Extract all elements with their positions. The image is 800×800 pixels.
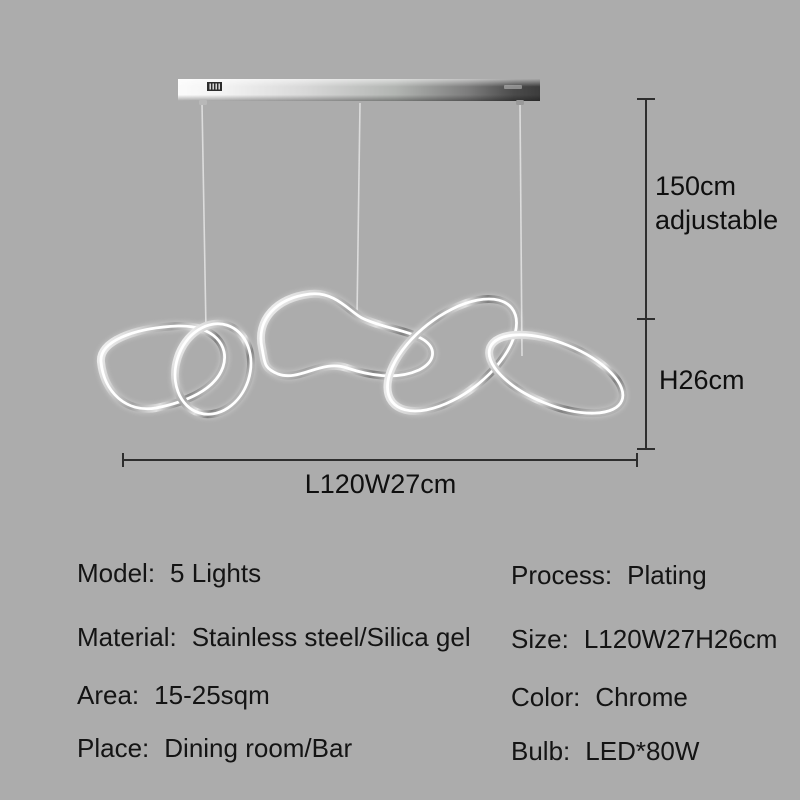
spec-row-process: Process:Plating xyxy=(511,560,707,590)
ring-1 xyxy=(101,326,225,409)
ceiling-bar xyxy=(178,79,540,105)
spec-label-model: Model: xyxy=(77,558,155,588)
spec-row-color: Color:Chrome xyxy=(511,682,688,712)
spec-value-material: Stainless steel/Silica gel xyxy=(192,622,471,652)
led-rings xyxy=(101,277,634,432)
dimension-line-horizontal xyxy=(123,459,638,461)
dimension-tick-top xyxy=(637,98,655,100)
spec-row-bulb: Bulb:LED*80W xyxy=(511,736,699,766)
spec-row-area: Area:15-25sqm xyxy=(77,680,270,710)
spec-value-process: Plating xyxy=(627,560,707,590)
wire-left xyxy=(202,103,206,330)
dimension-tick-right xyxy=(636,453,638,467)
spec-label-size: Size: xyxy=(511,624,569,654)
spec-row-place: Place:Dining room/Bar xyxy=(77,733,352,763)
spec-label-bulb: Bulb: xyxy=(511,736,570,766)
drop-height-label: 150cm adjustable xyxy=(655,169,778,237)
spec-label-area: Area: xyxy=(77,680,139,710)
barcode-mark xyxy=(207,82,222,91)
spec-label-process: Process: xyxy=(511,560,612,590)
dimension-tick-middle xyxy=(637,318,655,320)
spec-value-size: L120W27H26cm xyxy=(584,624,778,654)
fixture-height-label: H26cm xyxy=(659,366,745,394)
wire-connector-right xyxy=(516,100,524,105)
spec-value-model: 5 Lights xyxy=(170,558,261,588)
spec-value-color: Chrome xyxy=(595,682,687,712)
chandelier-illustration xyxy=(0,0,800,520)
drop-height-line2: adjustable xyxy=(655,203,778,237)
ring-4 xyxy=(368,277,536,432)
wire-connector-left xyxy=(199,100,207,105)
wire-middle xyxy=(357,103,360,316)
spec-value-area: 15-25sqm xyxy=(154,680,270,710)
product-spec-image: { "colors": { "background": "#acacac", "… xyxy=(0,0,800,800)
ceiling-bar-shading xyxy=(178,79,540,101)
spec-row-size: Size:L120W27H26cm xyxy=(511,624,777,654)
ring-3 xyxy=(261,294,433,376)
spec-label-material: Material: xyxy=(77,622,177,652)
ring-5 xyxy=(479,319,634,430)
dimension-tick-left xyxy=(122,453,124,467)
spec-value-bulb: LED*80W xyxy=(585,736,699,766)
dimension-tick-bottom xyxy=(637,448,655,450)
bar-brand-mark xyxy=(504,85,522,89)
spec-row-model: Model:5 Lights xyxy=(77,558,261,588)
spec-row-material: Material:Stainless steel/Silica gel xyxy=(77,622,471,652)
spec-value-place: Dining room/Bar xyxy=(164,733,352,763)
spec-label-place: Place: xyxy=(77,733,149,763)
product-diagram: 150cm adjustable H26cm L120W27cm Model:5… xyxy=(0,0,800,800)
fixture-width-label: L120W27cm xyxy=(123,469,638,499)
dimension-line-vertical xyxy=(645,99,647,449)
spec-label-color: Color: xyxy=(511,682,580,712)
drop-height-line1: 150cm xyxy=(655,169,778,203)
